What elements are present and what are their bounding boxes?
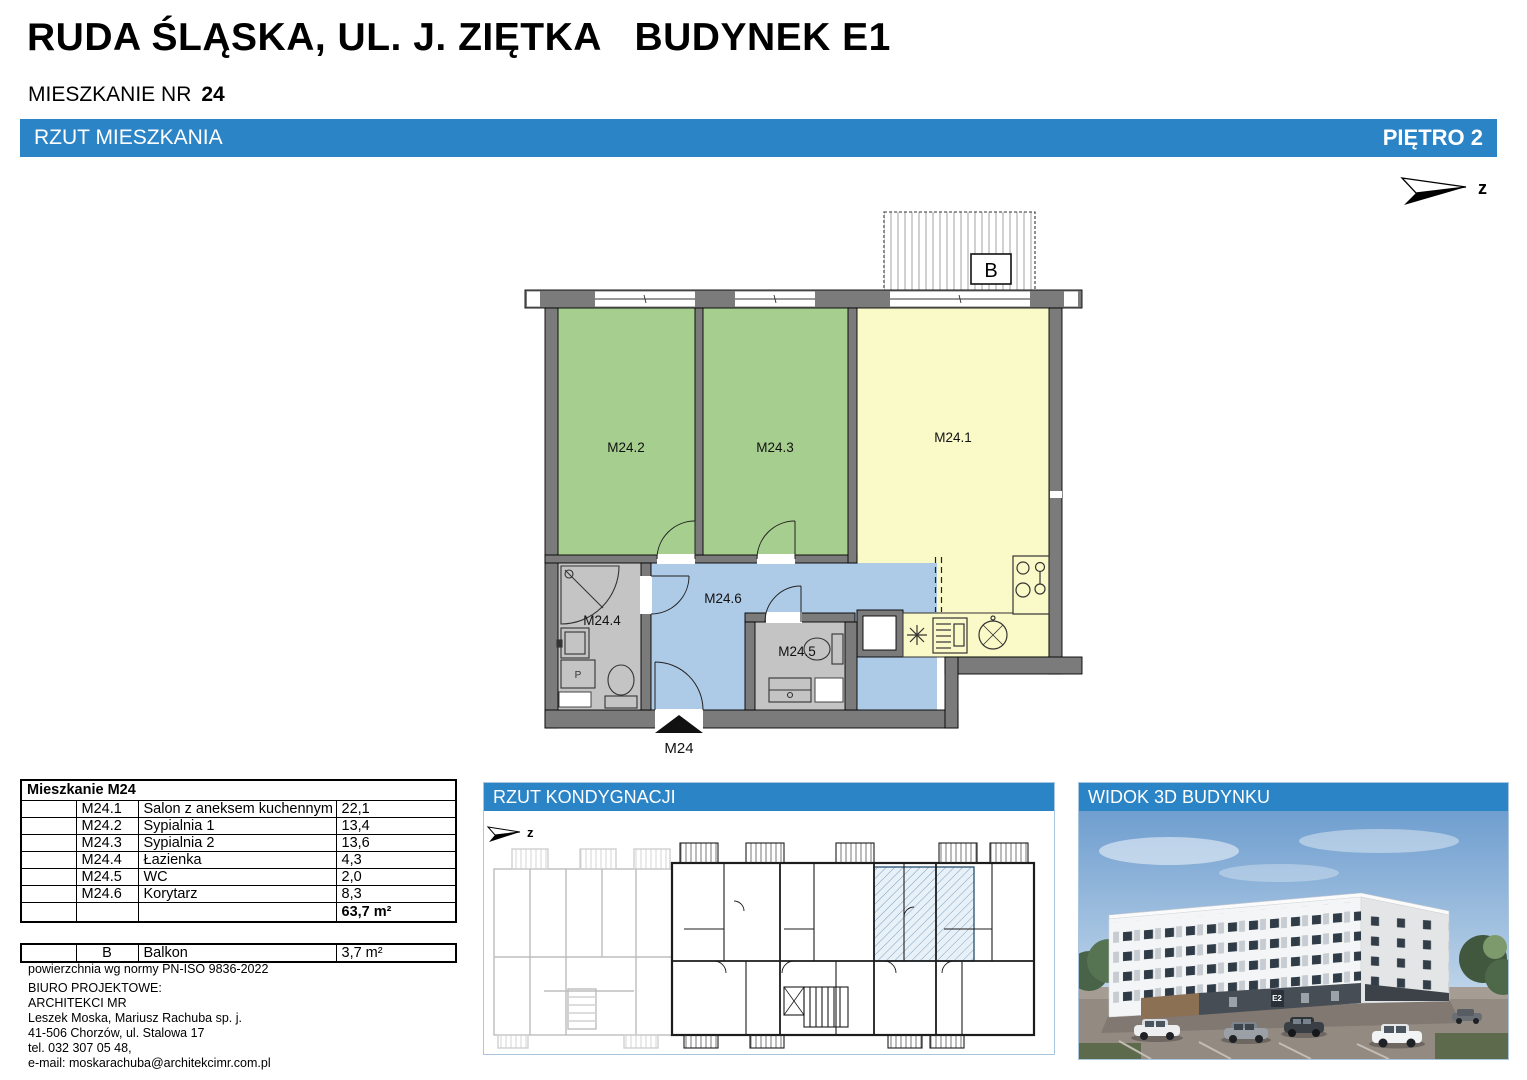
area-norm-note: powierzchnia wg normy PN-ISO 9836-2022 (28, 962, 268, 976)
office-line: tel. 032 307 05 48, (28, 1041, 271, 1056)
highlighted-apartment (874, 867, 974, 961)
level-plan-title: RZUT KONDYGNACJI (484, 783, 1054, 811)
area-table-title: Mieszkanie M24 (21, 780, 456, 801)
level-grey-section (494, 849, 672, 1048)
level-plan-panel: RZUT KONDYGNACJI z (483, 782, 1055, 1055)
level-plan-drawing: z (484, 811, 1052, 1052)
table-row: M24.4Łazienka4,3 (21, 852, 456, 869)
building-3d-render: E2 (1079, 811, 1508, 1059)
apartment-floor-plan: B (545, 210, 1062, 758)
balcony-label: B (984, 260, 997, 282)
label-m24-2: M24.2 (607, 440, 645, 455)
building-3d-title: WIDOK 3D BUDYNKU (1079, 783, 1508, 811)
room-sypialnia-1 (558, 308, 695, 555)
cloud (1099, 837, 1239, 865)
label-m24-3: M24.3 (756, 440, 794, 455)
entry-label: M24 (664, 740, 693, 757)
cloud (1299, 829, 1459, 853)
north-arrow-icon: z (1396, 166, 1508, 214)
apartment-number-line: MIESZKANIE NR24 (28, 83, 225, 107)
total-area: 63,7 m² (336, 903, 456, 923)
section-bar-plan: RZUT MIESZKANIA PIĘTRO 2 (20, 119, 1497, 157)
apartment-label: MIESZKANIE NR (28, 83, 191, 106)
washer-symbol: P (575, 670, 582, 681)
table-row: M24.2Sypialnia 113,4 (21, 818, 456, 835)
design-office-block: BIURO PROJEKTOWE: ARCHITEKCI MR Leszek M… (28, 981, 271, 1070)
page-title: RUDA ŚLĄSKA, UL. J. ZIĘTKA BUDYNEK E1 (27, 16, 891, 60)
apartment-number: 24 (201, 83, 224, 106)
apartment-card-page: RUDA ŚLĄSKA, UL. J. ZIĘTKA BUDYNEK E1 MI… (0, 0, 1527, 1080)
office-line: BIURO PROJEKTOWE: (28, 981, 271, 996)
room-sypialnia-2 (703, 308, 848, 555)
table-row: BBalkon3,7 m² (21, 944, 456, 962)
label-m24-6: M24.6 (704, 591, 742, 606)
plan-section-title: RZUT MIESZKANIA (34, 126, 223, 150)
floor-badge: PIĘTRO 2 (1383, 125, 1483, 151)
label-m24-5: M24.5 (778, 644, 816, 659)
washer-spot-symbol (907, 625, 927, 645)
table-row: M24.6Korytarz8,3 (21, 886, 456, 903)
grass (1435, 1033, 1508, 1059)
office-line: 41-506 Chorzów, ul. Stalowa 17 (28, 1026, 271, 1041)
svg-text:z: z (527, 825, 534, 840)
north-arrow-small-icon: z (488, 825, 534, 842)
balcony: B (884, 212, 1035, 294)
office-line: ARCHITEKCI MR (28, 996, 271, 1011)
shaft-niche (857, 610, 903, 657)
table-row: M24.5WC2,0 (21, 869, 456, 886)
table-row: M24.1Salon z aneksem kuchennym22,1 (21, 801, 456, 818)
building: E2 (1101, 893, 1461, 1033)
office-line: Leszek Moska, Mariusz Rachuba sp. j. (28, 1011, 271, 1026)
level-black-section (672, 843, 1034, 1048)
balcony-table: BBalkon3,7 m² (20, 943, 457, 963)
total-row: 63,7 m² (21, 903, 456, 923)
label-m24-4: M24.4 (583, 613, 621, 628)
label-m24-1: M24.1 (934, 430, 972, 445)
building-3d-panel: WIDOK 3D BUDYNKU (1078, 782, 1509, 1060)
grass (1079, 1043, 1141, 1059)
building-entrance-label: E2 (1272, 994, 1282, 1003)
cloud (1219, 864, 1339, 882)
stove (1013, 556, 1049, 614)
north-arrow-label: z (1478, 178, 1487, 198)
table-row: M24.3Sypialnia 213,6 (21, 835, 456, 852)
office-line: e-mail: moskarachuba@architekcimr.com.pl (28, 1056, 271, 1071)
area-table: Mieszkanie M24 M24.1Salon z aneksem kuch… (20, 779, 457, 923)
